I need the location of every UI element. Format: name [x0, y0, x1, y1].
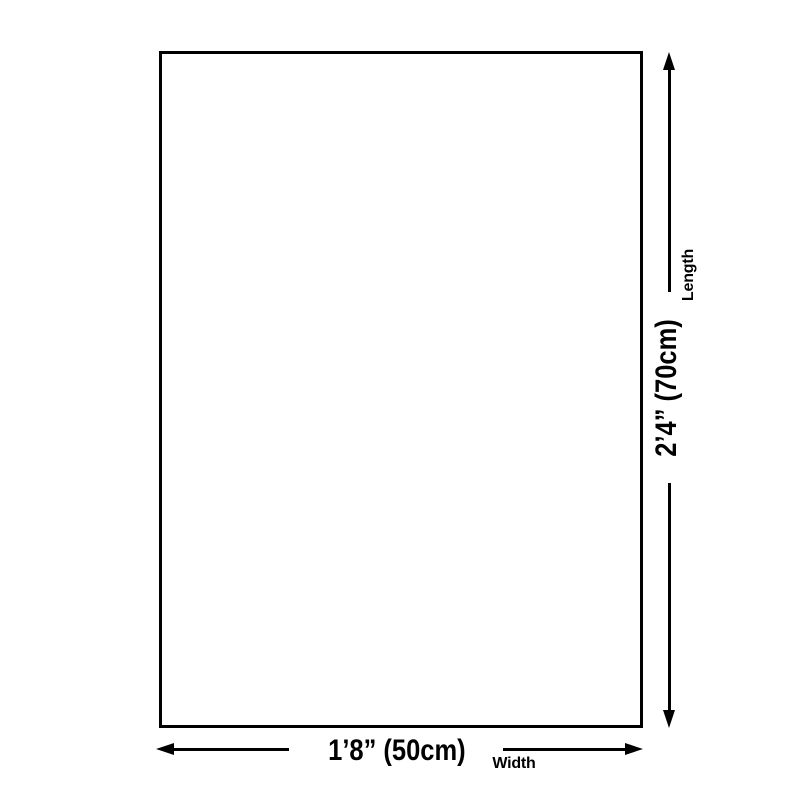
width-value-text: 1’8” (50cm): [328, 735, 465, 767]
length-arrow-top-line: [668, 68, 671, 292]
length-value-text: 2’4” (70cm): [650, 319, 684, 456]
width-value: 1’8” (50cm): [292, 735, 502, 767]
length-arrow-bottom-line: [668, 483, 671, 710]
size-rectangle: [159, 51, 643, 728]
width-label-text: Width: [492, 755, 535, 772]
length-label-text: Length: [680, 249, 698, 301]
diagram-canvas: 1’8” (50cm) Width 2’4” (70cm) Length: [0, 0, 800, 800]
arrowhead-right-icon: [625, 743, 643, 755]
length-value: 2’4” (70cm): [652, 283, 682, 493]
length-label: Length: [675, 240, 703, 310]
arrowhead-down-icon: [663, 710, 675, 728]
width-label: Width: [479, 755, 549, 773]
width-arrow-left-line: [171, 748, 289, 751]
width-arrow-right-line: [503, 748, 627, 751]
